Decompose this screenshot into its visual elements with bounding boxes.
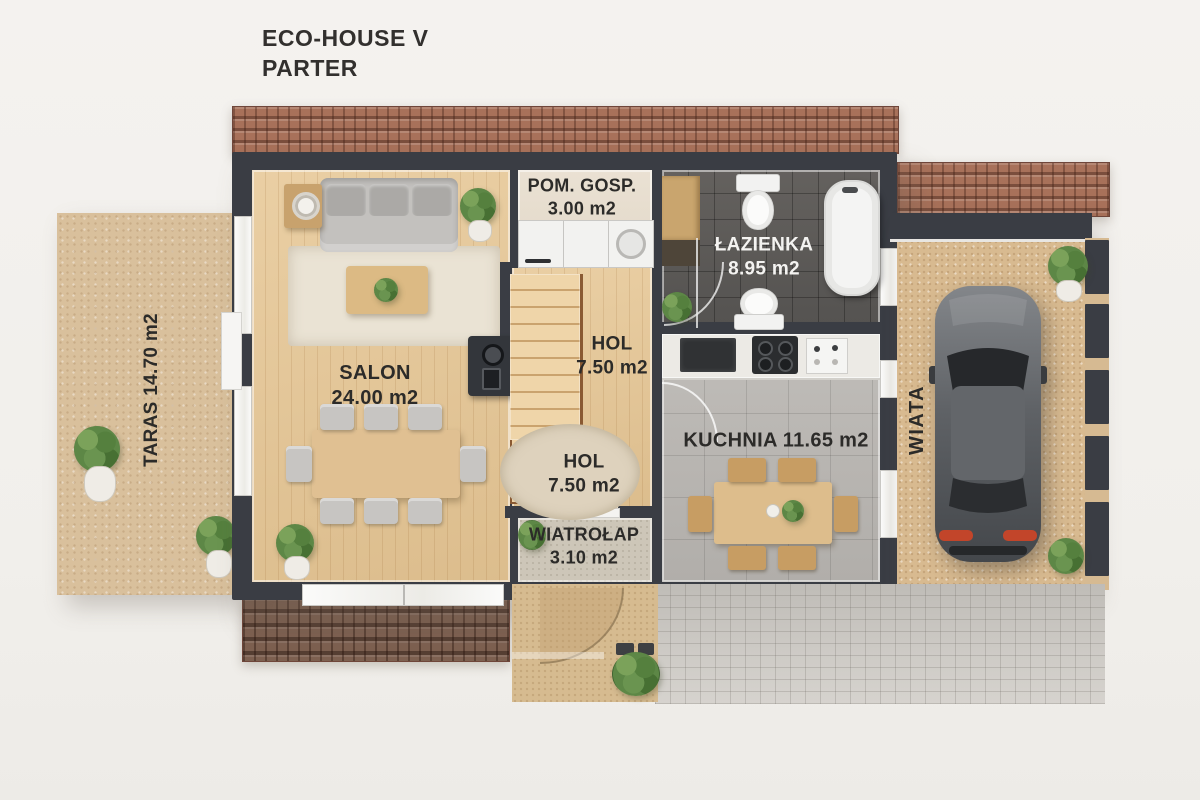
toilet-tank xyxy=(734,314,784,330)
room-label-lazienka: ŁAZIENKA 8.95 m2 xyxy=(715,233,813,281)
pillar xyxy=(1085,370,1109,424)
burner xyxy=(758,357,773,372)
burner xyxy=(778,357,793,372)
burner xyxy=(758,341,773,356)
cabinet xyxy=(564,221,609,267)
carport-wall xyxy=(890,213,1092,242)
dining-table xyxy=(312,430,460,498)
room-label-wiatrolap: WIATROŁAP 3.10 m2 xyxy=(529,524,639,569)
window xyxy=(880,360,898,398)
pillar xyxy=(1085,304,1109,358)
roof-eave-bottom xyxy=(242,598,510,662)
washer-drum xyxy=(616,229,646,259)
window xyxy=(880,248,898,306)
floor-plan-canvas: ECO-HOUSE V PARTER TARAS 14.70 m2 xyxy=(0,0,1200,800)
sofa-cushion xyxy=(369,184,409,216)
knob xyxy=(832,345,838,351)
room-label-hol-upper: HOL 7.50 m2 xyxy=(576,332,648,380)
toilet xyxy=(742,190,774,230)
interior-wall xyxy=(652,518,662,582)
window-sill xyxy=(221,312,242,390)
side-table xyxy=(284,184,322,228)
room-label-pom-gosp: POM. GOSP. 3.00 m2 xyxy=(528,175,637,220)
burner xyxy=(778,341,793,356)
kitchen-chair xyxy=(778,458,816,482)
dining-chair xyxy=(286,446,312,482)
plant-pot xyxy=(84,466,116,502)
dining-chair xyxy=(364,498,398,524)
plant-pot xyxy=(1056,280,1082,302)
knob xyxy=(832,359,838,365)
sofa-cushion xyxy=(412,184,452,216)
knob xyxy=(814,346,820,352)
carport-pillars xyxy=(1085,238,1109,590)
dining-chair xyxy=(408,498,442,524)
car-top-view xyxy=(925,280,1051,568)
interior-wall xyxy=(652,444,662,518)
stove-flue xyxy=(482,344,504,366)
window xyxy=(880,470,898,538)
knob xyxy=(814,359,820,365)
table-plant xyxy=(782,500,804,522)
sofa xyxy=(320,178,458,252)
bathtub-tap xyxy=(842,187,858,193)
interior-wall xyxy=(618,506,652,518)
bathtub xyxy=(824,180,880,296)
floor-name: PARTER xyxy=(262,54,429,84)
taillight xyxy=(939,530,973,541)
plant-pot xyxy=(284,556,310,580)
washing-machine xyxy=(609,221,653,267)
interior-wall xyxy=(510,170,518,266)
pillar xyxy=(1085,502,1109,576)
kitchen-chair xyxy=(728,458,766,482)
table-lamp xyxy=(292,192,320,220)
roof-eave-carport xyxy=(897,162,1110,217)
shrub xyxy=(612,652,660,696)
project-name: ECO-HOUSE V xyxy=(262,24,429,54)
pillar xyxy=(1085,240,1109,294)
potted-plant xyxy=(662,292,692,322)
roof-eave-top xyxy=(232,106,899,154)
counter-appliance xyxy=(806,338,848,374)
cooktop xyxy=(752,336,798,374)
plant-pot xyxy=(468,220,492,242)
cabinet xyxy=(519,221,564,267)
kitchen-chair xyxy=(728,546,766,570)
cabinet-handle xyxy=(525,259,551,263)
kitchen-sink xyxy=(680,338,736,372)
room-label-salon: SALON 24.00 m2 xyxy=(332,361,419,411)
room-label-hol-lower: HOL 7.50 m2 xyxy=(548,450,620,498)
potted-plant xyxy=(460,188,496,224)
room-label-kuchnia: KUCHNIA 11.65 m2 xyxy=(683,429,868,454)
kitchen-chair xyxy=(834,496,858,532)
pillar xyxy=(1085,436,1109,490)
staircase xyxy=(510,274,583,440)
dining-chair xyxy=(460,446,486,482)
table-plant xyxy=(374,278,398,302)
stove-door xyxy=(482,368,501,390)
cup xyxy=(766,504,780,518)
sofa-cushion xyxy=(326,184,366,216)
interior-wall xyxy=(652,334,662,384)
kitchen-chair xyxy=(778,546,816,570)
plan-title: ECO-HOUSE V PARTER xyxy=(262,24,429,84)
room-label-wiata: WIATA xyxy=(902,340,932,500)
utility-appliances xyxy=(518,220,654,268)
bathroom-cabinet xyxy=(662,176,700,240)
cobblestone-driveway xyxy=(655,584,1105,704)
room-label-taras: TARAS 14.70 m2 xyxy=(137,280,167,500)
kitchen-chair xyxy=(688,496,712,532)
fireplace-stove xyxy=(468,336,514,396)
terrace-sliding-window xyxy=(302,584,504,606)
potted-plant xyxy=(1048,538,1084,574)
porch-step xyxy=(512,652,604,659)
plant-pot xyxy=(206,550,232,578)
window xyxy=(234,386,252,496)
taillight xyxy=(1003,530,1037,541)
dining-chair xyxy=(320,498,354,524)
